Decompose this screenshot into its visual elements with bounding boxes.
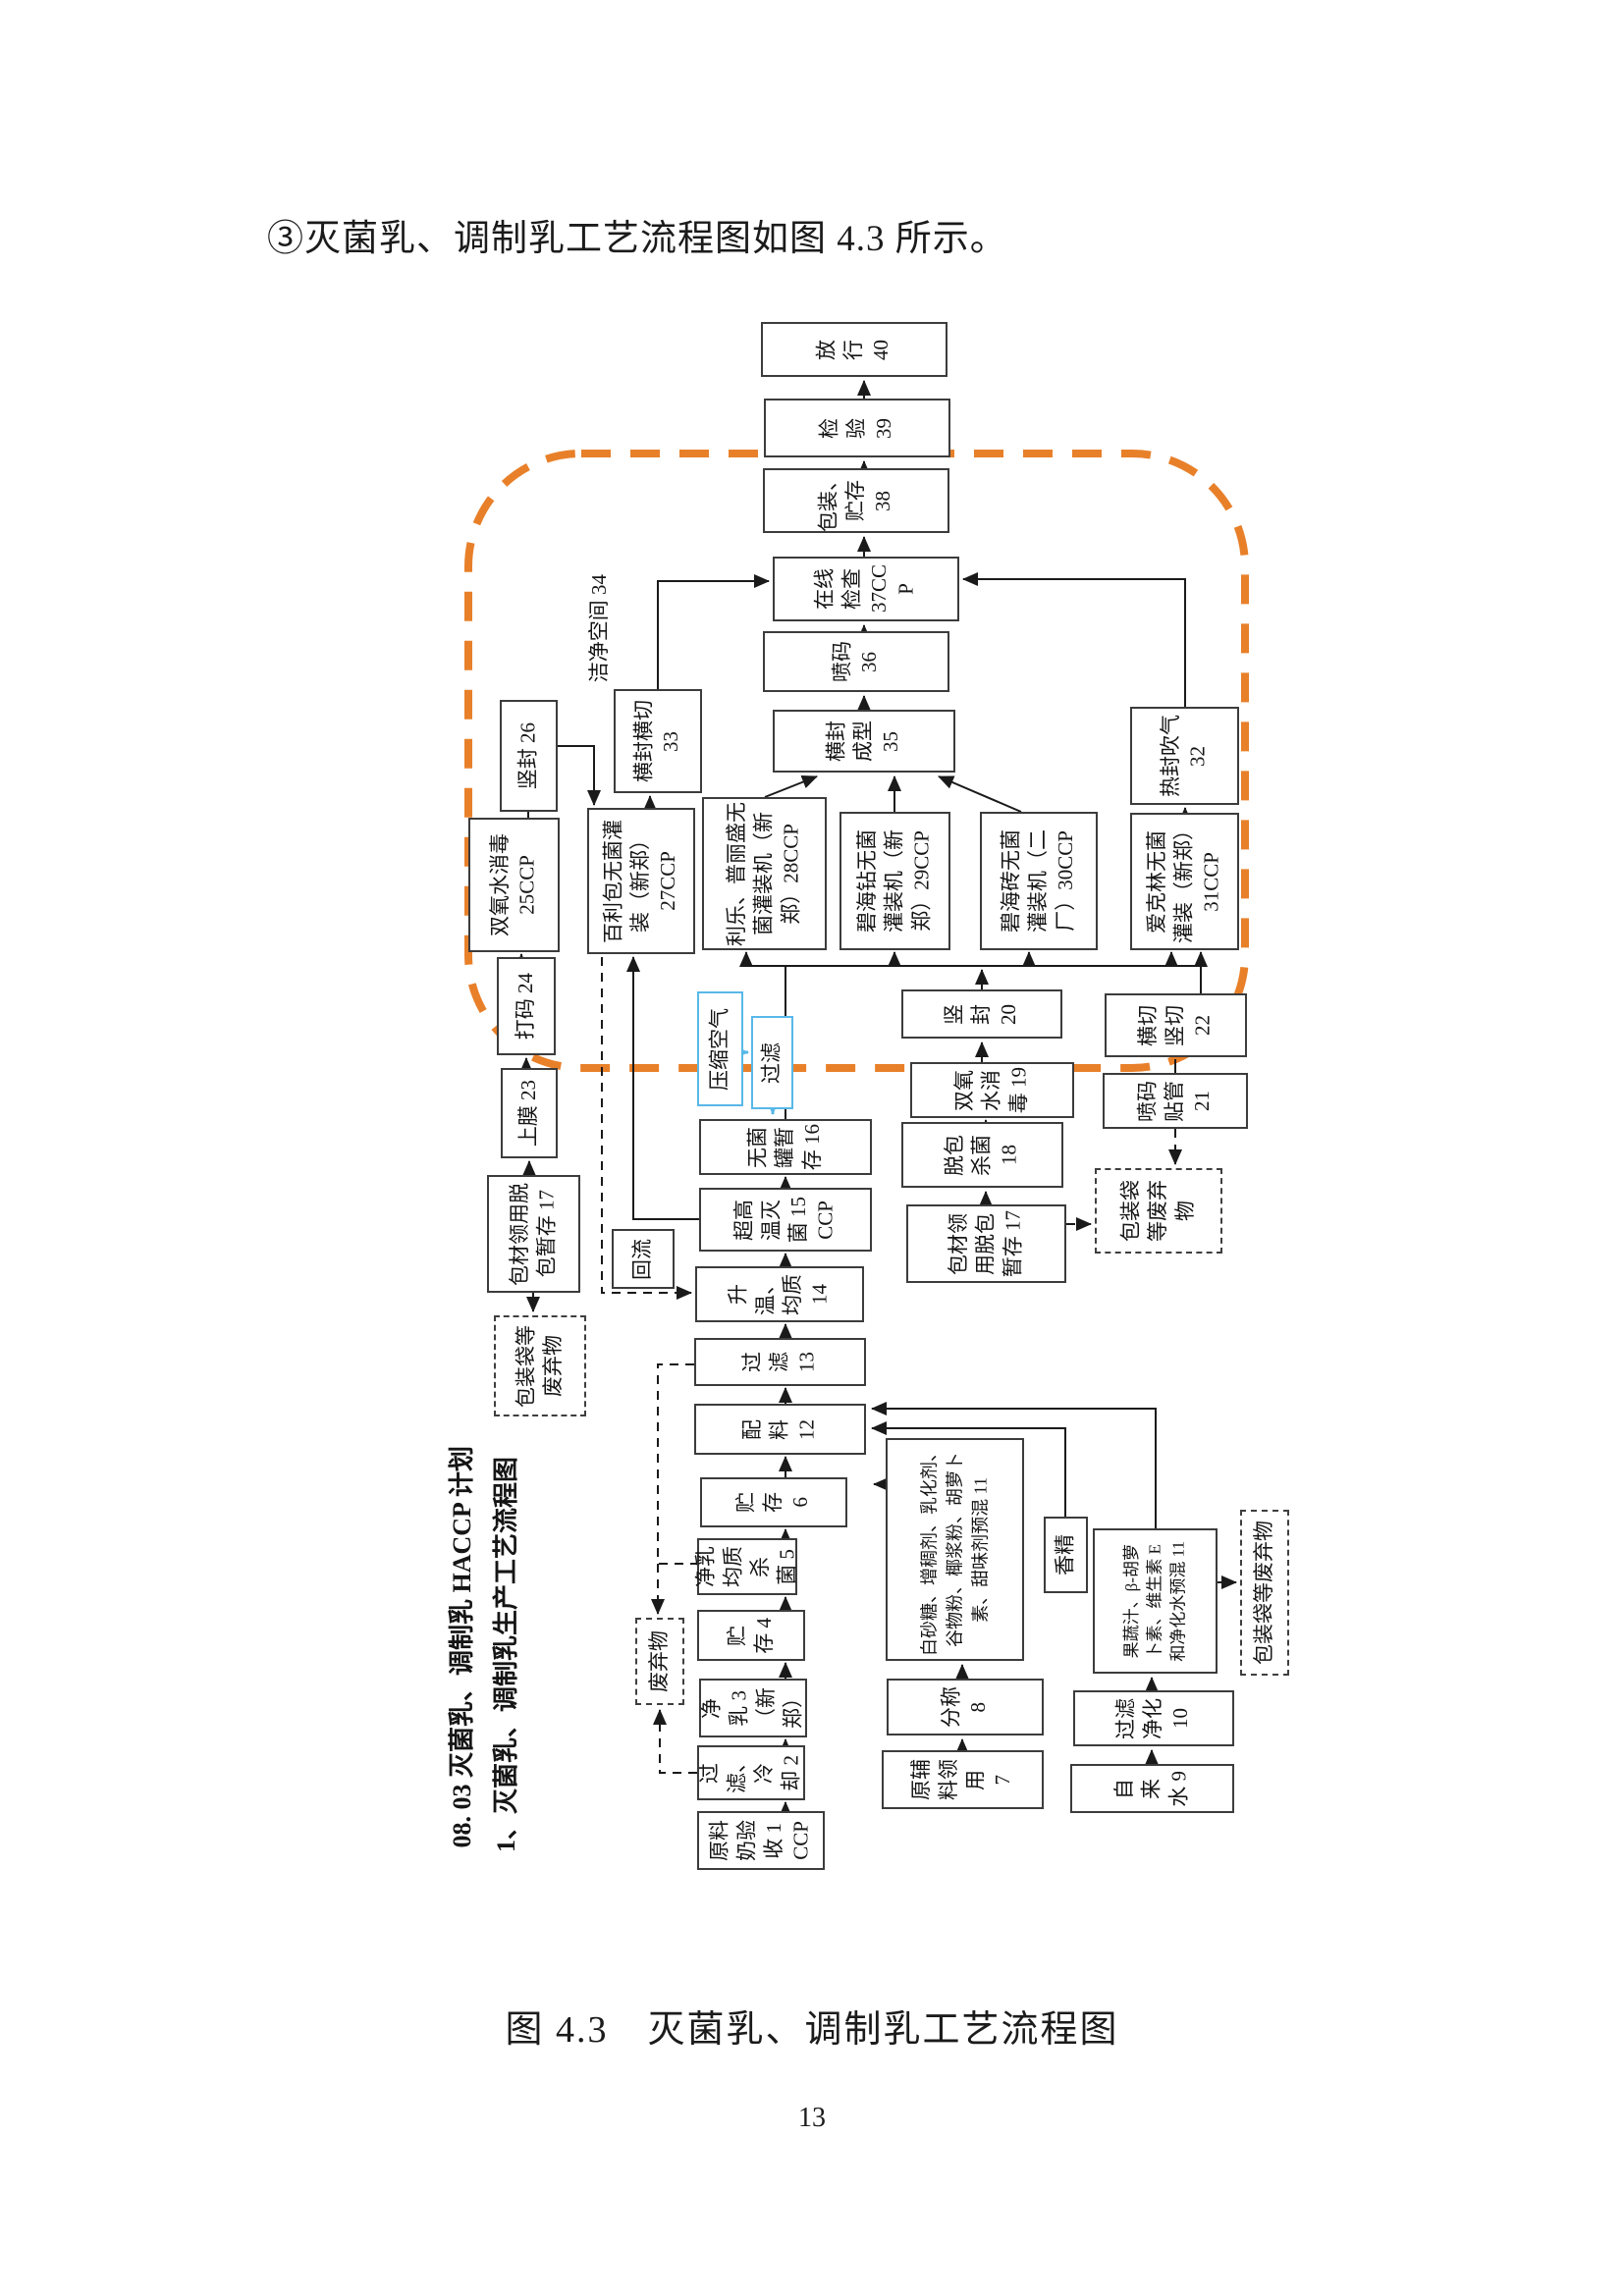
node-step-1: 原料 奶验 收 1 CCP [697,1811,825,1870]
clean-space-label: 洁净空间 34 [571,548,628,710]
node-step-9: 自 来 水 9 [1070,1764,1234,1813]
node-step-22: 横切 竖切 22 [1105,993,1247,1057]
node-waste-right: 包装袋 等废弃 物 [1095,1168,1222,1254]
node-step-13: 过 滤 13 [694,1338,866,1386]
node-step-28: 利乐、普丽盛无 菌灌装机（新 郑）28CCP [702,797,827,950]
node-step-12: 配 料 12 [694,1404,866,1455]
node-step-33: 横封横切 33 [614,689,702,793]
node-step-38: 包装、 贮存 38 [763,468,949,533]
node-step-10: 过滤 净化 10 [1073,1690,1234,1746]
node-step-20: 竖 封 20 [901,989,1062,1039]
node-step-8: 分称 8 [887,1679,1044,1735]
node-air-filter: 过滤 [751,1016,793,1109]
node-step-37: 在线 检查 37CC P [773,557,959,621]
intro-sentence: ③灭菌乳、调制乳工艺流程图如图 4.3 所示。 [267,208,1007,261]
diagram-title-flow: 1、灭菌乳、调制乳生产工艺流程图 [485,1468,528,1841]
node-essence: 香精 [1044,1517,1088,1593]
node-step-30: 碧海砖无菌 灌装机（二 厂）30CCP [980,812,1098,950]
node-step-26: 竖封 26 [500,700,558,812]
node-step-14: 升 温、 均质 14 [695,1266,864,1322]
node-waste-middle: 废弃物 [635,1618,684,1705]
document-page: ③灭菌乳、调制乳工艺流程图如图 4.3 所示。 图 4.3 灭菌乳、调制乳工艺流… [0,0,1624,2296]
node-step-32: 热封吹气 32 [1130,707,1239,805]
node-reflux: 回流 [612,1229,675,1289]
node-step-17-left: 包材领用脱 包暂存 17 [487,1175,580,1293]
node-step-40: 放 行 40 [761,322,947,377]
node-step-11-dry-premix: 白砂糖、增稠剂、乳化剂、 谷物粉、椰浆粉、胡萝卜 素、甜味剂预混 11 [886,1438,1024,1661]
node-step-19: 双氧 水消 毒 19 [910,1062,1074,1118]
node-waste-left: 包装袋等 废弃物 [494,1315,586,1416]
node-step-15: 超高 温灭 菌 15 CCP [699,1188,872,1252]
node-step-16: 无菌 罐暂 存 16 [699,1119,872,1175]
node-step-7: 原辅 料领 用 7 [882,1750,1044,1809]
figure-caption: 图 4.3 灭菌乳、调制乳工艺流程图 [0,1999,1624,2053]
node-compressed-air: 压缩空气 [697,991,743,1106]
node-step-31: 爱克林无菌 灌装（新郑） 31CCP [1130,813,1239,950]
node-waste-bottom-right: 包装袋等废弃物 [1240,1510,1289,1676]
node-step-29: 碧海钻无菌 灌装机（新 郑）29CCP [839,812,950,950]
node-step-3: 净 乳 3 （新 郑） [699,1679,807,1737]
node-step-35: 横封 成型 35 [773,710,955,773]
node-step-24: 打码 24 [497,957,556,1055]
node-step-17-right: 包材领 用脱包 暂存 17 [906,1204,1066,1283]
node-step-5: 净乳 均质 杀 菌 5 [697,1538,797,1595]
node-step-39: 检 验 39 [764,399,950,457]
page-number: 13 [0,2103,1624,2134]
diagram-title-haccp: 08. 03 灭菌乳、调制乳 HACCP 计划 [440,1441,485,1853]
node-step-2: 过 滤、 冷 却 2 [697,1745,805,1800]
node-step-27: 百利包无菌灌 装（新郑） 27CCP [587,808,695,954]
node-step-36: 喷码 36 [763,631,949,692]
node-step-18: 脱包 杀菌 18 [901,1122,1063,1188]
node-step-25: 双氧水消毒 25CCP [468,818,560,952]
node-step-11-juice-premix: 果蔬汁、β-胡萝 卜素、维生素 E 和净化水预混 11 [1093,1528,1218,1674]
node-step-21: 喷码 贴管 21 [1103,1073,1248,1129]
node-step-23: 上膜 23 [501,1068,558,1158]
node-step-6: 贮 存 6 [700,1477,847,1527]
node-step-4: 贮 存 4 [697,1610,805,1661]
